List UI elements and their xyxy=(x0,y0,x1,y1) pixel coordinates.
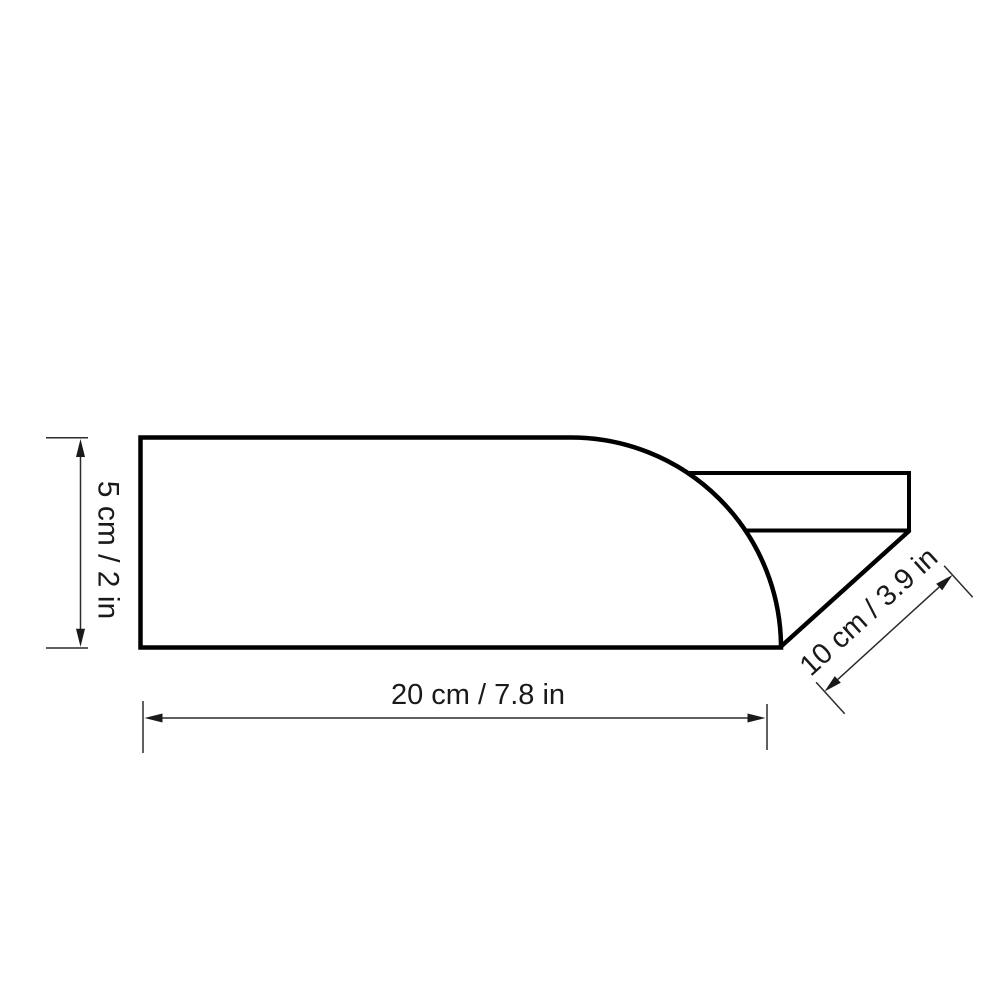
product-body-outline xyxy=(141,438,782,648)
arrowhead-down xyxy=(76,629,85,647)
arrowhead-right xyxy=(748,714,766,723)
arrowhead-left xyxy=(145,714,163,723)
spout-extension-line-upper xyxy=(944,566,973,598)
length-dimension: 20 cm / 7.8 in xyxy=(143,679,767,753)
dimension-drawing-page: 5 cm / 2 in 20 cm / 7.8 in 10 cm / 3.9 i… xyxy=(0,0,992,992)
spout-dimension: 10 cm / 3.9 in xyxy=(794,542,973,714)
height-dimension: 5 cm / 2 in xyxy=(46,438,125,648)
arrowhead-up xyxy=(76,439,85,457)
length-dimension-label: 20 cm / 7.8 in xyxy=(391,679,565,711)
product-outline xyxy=(141,438,910,648)
dimension-drawing-canvas: 5 cm / 2 in 20 cm / 7.8 in 10 cm / 3.9 i… xyxy=(0,0,992,992)
height-dimension-label: 5 cm / 2 in xyxy=(92,481,125,619)
